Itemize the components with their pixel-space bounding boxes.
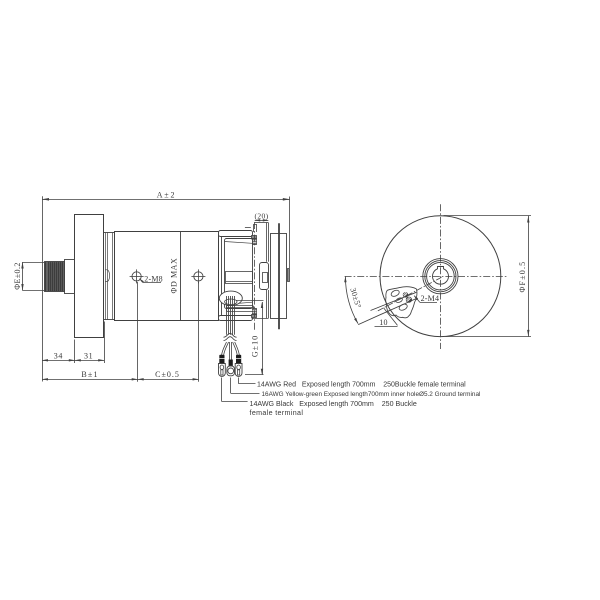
svg-text:31: 31 [84,352,93,361]
svg-text:ΦE±0.2: ΦE±0.2 [13,262,22,290]
svg-text:ΦD MAX: ΦD MAX [170,258,179,294]
svg-text:14AWG Red Exposed length 700: 14AWG Red Exposed length 700mm 250Buckle… [257,381,466,388]
svg-text:10: 10 [379,318,388,327]
svg-text:16AWG Yellow-green Exposed len: 16AWG Yellow-green Exposed length700mm i… [262,391,481,398]
svg-text:34: 34 [54,352,63,361]
svg-text:14AWG Black Exposed length 7: 14AWG Black Exposed length 700mm 250 Buc… [250,400,417,408]
svg-text:ΦF±0.5: ΦF±0.5 [518,261,527,293]
svg-text:A±2: A±2 [157,190,177,199]
svg-text:2-M4: 2-M4 [421,294,440,303]
svg-text:G±10: G±10 [251,335,260,357]
svg-text:female terminal: female terminal [250,409,304,417]
svg-text:(20): (20) [254,212,268,221]
svg-text:2-M8: 2-M8 [144,274,163,283]
svg-text:C±0.5: C±0.5 [155,370,180,379]
svg-text:B±1: B±1 [81,370,98,379]
